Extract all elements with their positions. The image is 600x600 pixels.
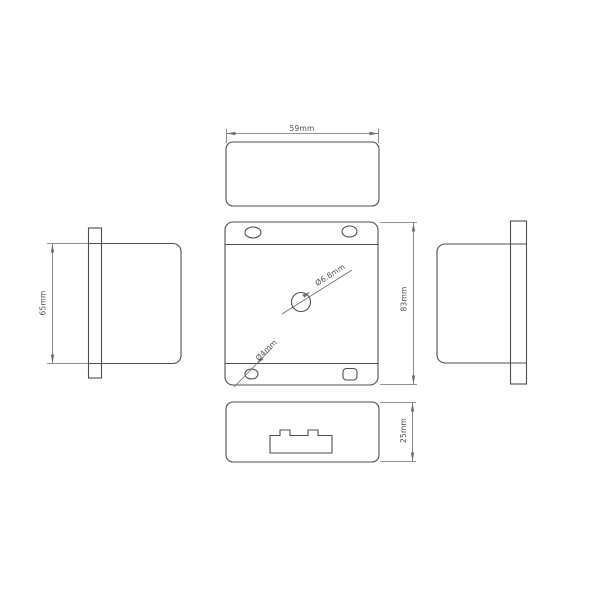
- width-dimension-label: 59mm: [290, 124, 315, 133]
- side-height-dimension-label: 65mm: [39, 291, 48, 316]
- enclosure-orthographic-drawing: 59mm 83mm 65mm 25mm Ø6.8mm Ø4mm: [0, 0, 600, 600]
- technical-drawing-page: 59mm 83mm 65mm 25mm Ø6.8mm Ø4mm: [0, 0, 600, 600]
- depth-dimension-label: 25mm: [399, 418, 408, 443]
- height-dimension-label: 83mm: [400, 287, 409, 312]
